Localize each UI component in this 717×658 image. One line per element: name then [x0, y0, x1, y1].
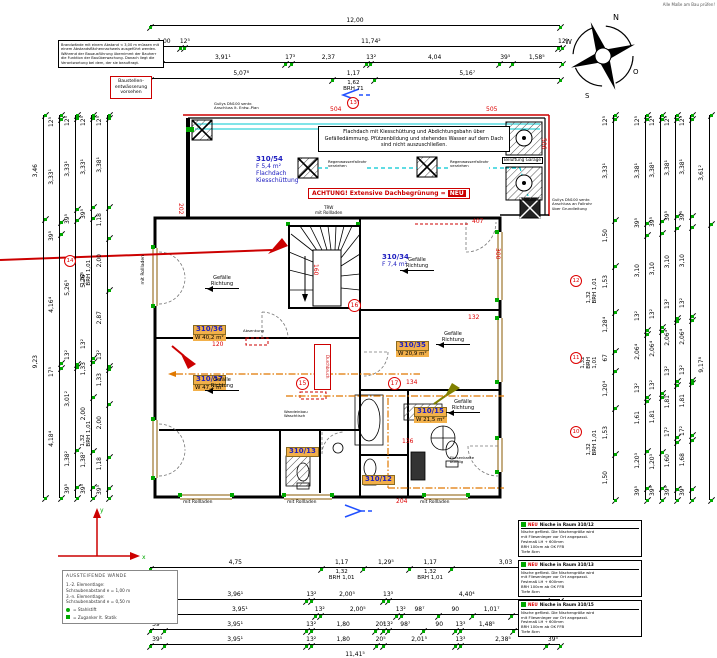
compass-s: S: [585, 92, 590, 100]
dim-segment: 9,23: [30, 226, 44, 499]
slope-direction: Gefälle Richtung: [446, 400, 480, 413]
slope-direction: Gefälle Richtung: [205, 276, 239, 289]
dim-value: 4,75: [150, 560, 321, 566]
legend-item: = Zuganker lt. Statik: [73, 615, 117, 621]
dim-segment: 3,38¹: [632, 128, 646, 214]
dim-value: 2,06⁴: [635, 344, 641, 360]
dim-value: 13²: [635, 383, 641, 393]
dim-value: 2,00⁵: [320, 607, 396, 613]
dim-value: 2,00: [97, 416, 103, 429]
dim-value: 39⁵: [635, 486, 641, 496]
dim-value: 1,17: [332, 71, 374, 77]
dim-segment: 1,18: [94, 447, 108, 481]
coordinate-axes: [58, 508, 140, 560]
dim-value: 20⁵: [375, 622, 382, 628]
dimension-chain: 39⁵3,95¹13²1,8020⁵13²98⁷9013³1,48⁵9039⁵: [150, 616, 560, 630]
dim-value: 90: [423, 622, 455, 628]
dim-value: 3,33¹: [49, 169, 55, 185]
slope-text: Gefälle Richtung: [211, 377, 233, 389]
dim-value: 1,33: [81, 362, 87, 375]
dim-value: 2,06⁴: [680, 329, 686, 345]
dim-segment: 2,37: [291, 49, 366, 63]
dim-value: 1,80: [311, 622, 376, 628]
drain-label-right: Gullys DN100 senkr. Anschluss an Fallroh…: [552, 198, 592, 211]
dim-value: 2,01⁵: [383, 637, 455, 643]
dim-segment: 1,33: [94, 362, 108, 399]
neu-tag: NEU: [528, 602, 538, 607]
room-number: 310/15: [414, 407, 447, 417]
dim-value: 3,38¹: [97, 157, 103, 173]
dim-value: 9,23: [33, 355, 39, 368]
dim-value: 67: [603, 354, 609, 362]
dim-segment: 13²: [662, 365, 676, 378]
dimension-chain: 12⁵3,33¹39⁵5,26⁵13²3,01²1,38²39⁵: [62, 115, 76, 498]
dim-segment: 3,10: [677, 225, 691, 297]
dim-segment: 13²: [62, 348, 76, 361]
niche-legend-header: NEUNische in Raum 310/13: [521, 562, 639, 569]
installation-arrowhead: [168, 371, 176, 377]
general-note: Brandwände mit einem Abstand < 3,00 m mü…: [58, 40, 164, 68]
dim-value: 1,38²: [65, 451, 71, 467]
garage-vent-label: Belüftung Garage: [502, 157, 543, 164]
window-label: mit Rollladen: [183, 501, 213, 506]
dim-value: 2,06⁴: [650, 341, 656, 357]
dim-value: 98⁷: [388, 622, 423, 628]
dim-value: 13²: [81, 339, 87, 349]
dim-value: 39⁵: [680, 211, 686, 221]
staircase: [289, 226, 360, 308]
dim-value: 12⁵: [635, 116, 641, 126]
dim-value: 1,33: [97, 373, 103, 386]
dimension-chain: 39⁵3,96¹13²2,00⁵13³4,40⁴39⁵: [150, 586, 560, 600]
dim-value: 12⁵: [603, 116, 609, 126]
dim-value: 12⁵: [650, 116, 656, 126]
dim-value: 1,81: [650, 410, 656, 423]
dim-segment: 5,07⁸: [150, 65, 332, 79]
dim-value: 3,01²: [65, 391, 71, 407]
niche-legend-header: NEUNische in Raum 310/15: [521, 602, 639, 609]
dim-segment: 1,33: [78, 350, 92, 388]
dim-segment: 3,10: [647, 231, 661, 308]
dim-segment: 17²: [662, 425, 676, 438]
slope-direction: Gefälle Richtung: [205, 378, 239, 391]
dimension-chain: 12,00: [150, 12, 560, 26]
dim-segment: 39⁵: [662, 208, 676, 226]
dim-value: 39⁵: [499, 55, 512, 61]
dim-value: 17²: [680, 426, 686, 436]
position-circle: 17: [388, 377, 401, 390]
dim-value: 1,20³: [635, 453, 641, 469]
dim-value: 39⁵: [49, 231, 55, 241]
dim-value: 13²: [650, 380, 656, 390]
dim-value: 13²: [65, 350, 71, 360]
dim-value: 12⁵: [665, 116, 671, 126]
dim-segment: 1,171,62 BRH 7113: [332, 65, 374, 79]
dim-value: 12⁵: [81, 116, 87, 126]
dim-segment: 3,33¹: [46, 128, 60, 226]
legend-niches: NEUNische in Raum 310/12Nische gefliest.…: [518, 520, 642, 640]
dimension-chain: 1,0012⁵11,74²12⁵: [148, 33, 562, 47]
dimension-chain: 39⁵3,91¹17³2,3713²4,0439⁵1,58⁵: [148, 49, 562, 63]
dim-value: 1,50: [603, 229, 609, 242]
dim-segment: 2,87: [94, 285, 108, 349]
dim-value: 1,53: [603, 426, 609, 439]
dim-segment: 3,10: [632, 232, 646, 310]
plan-annotation: Fliesenkante bündig: [450, 456, 474, 465]
dim-segment: 3,01²: [62, 361, 76, 437]
dim-segment: 39⁵: [647, 213, 661, 231]
window-label: mit Rollladen: [287, 501, 317, 506]
dim-value: 13²: [635, 311, 641, 321]
dimension-chain: 12⁵3,38¹39⁵3,1013²2,06⁴13²1,811,20³39⁵: [647, 115, 661, 500]
drainage-note: Baustellen- entwässerung vorsehen: [110, 76, 152, 99]
dim-value: 39⁵: [680, 486, 686, 496]
dim-value: 3,91¹: [161, 55, 286, 61]
dim-segment: 3,38¹: [94, 127, 108, 202]
slope-arrow-icon: [436, 344, 470, 345]
position-number: 505: [486, 107, 497, 113]
dim-segment: 671,32 BRH 1,0111: [600, 347, 614, 369]
dim-segment: 1,18: [94, 203, 108, 237]
dim-value: 1,68: [680, 453, 686, 466]
dim-segment: 1,28⁴: [600, 304, 614, 347]
dim-value: 39⁵: [81, 209, 87, 219]
position-number: 202: [177, 203, 183, 214]
position-number: 120: [212, 342, 223, 348]
room-number: 310/36: [193, 325, 226, 335]
position-number: 136: [402, 439, 413, 445]
dim-segment: 13²: [677, 297, 691, 310]
dim-value: 3,96¹: [164, 592, 306, 598]
dim-segment: 3,95¹: [165, 601, 315, 615]
slope-text: Gefälle Richtung: [452, 399, 474, 411]
dim-value: 3,10: [680, 254, 686, 267]
dim-value: 4,16⁴: [49, 297, 55, 313]
dim-segment: 1,171,32 BRH 1,01: [409, 554, 451, 568]
dim-value: 13²: [650, 309, 656, 319]
compass-o: O: [633, 68, 639, 76]
dim-value: 9,17⁸: [699, 357, 705, 373]
dimension-chain: 12⁵3,38¹39⁵3,1013²2,06⁴13²1,8117²1,6839⁵: [677, 115, 691, 500]
dim-value: 1,48⁵: [460, 622, 513, 628]
dim-segment: 2,01⁵: [383, 631, 455, 645]
dim-sub-value: 1,62 BRH 71: [312, 80, 394, 93]
dim-value: 2,00: [97, 254, 103, 267]
dim-sub-value: 1,32 BRH 1,01: [586, 410, 598, 456]
room-tag: 310/35W 20,9 m²: [396, 332, 429, 357]
dim-value: 3,33¹: [81, 159, 87, 175]
niche-line: Tiefe 8cm: [521, 550, 639, 555]
dim-segment: 39⁵: [632, 214, 646, 232]
dim-value: 1,01⁷: [472, 607, 511, 613]
niche-legend-box: NEUNische in Raum 310/13Nische gefliest.…: [518, 560, 642, 597]
dim-value: 39⁵: [65, 484, 71, 494]
dim-segment: 3,38¹: [662, 127, 676, 207]
dim-segment: 1,38²: [62, 437, 76, 480]
drain-label-left: Gullys DN100 senkr. Anschluss lt. Entw.-…: [214, 102, 259, 111]
dim-value: 1,17: [409, 560, 451, 566]
dimension-chain: 12⁵3,38¹39⁵3,1013²2,06⁴13²1,8117²1,6039⁵: [662, 115, 676, 500]
dim-segment: 9,17⁸: [696, 231, 710, 500]
dim-value: 1,38²: [81, 452, 87, 468]
dim-value: 2,06⁴: [665, 330, 671, 346]
dim-segment: 3,38¹: [677, 127, 691, 207]
dim-segment: 11,41⁵: [150, 646, 560, 658]
dim-value: 39⁵: [97, 485, 103, 495]
room-tag: 310/36W 40,2 m²: [193, 316, 226, 341]
room-id: 310/54: [256, 155, 283, 163]
dim-segment: 1,01⁷: [472, 601, 511, 615]
dim-value: 1,20⁴: [603, 381, 609, 397]
dim-segment: 2,001,32 BRH 1,0114: [94, 237, 108, 286]
neu-tag: NEU: [528, 522, 538, 527]
dim-value: 39⁵: [650, 486, 656, 496]
room-number: 310/13: [286, 447, 319, 457]
legend-line: Schraubenabstand e = 0,50 m: [66, 599, 174, 605]
slope-arrow-icon: [446, 412, 480, 413]
dim-sub-value: 1,32 BRH 1,01: [301, 569, 383, 582]
dim-segment: 98⁷: [388, 616, 423, 630]
axis-x-label: x: [142, 554, 146, 561]
slope-direction: Gefälle Richtung: [400, 258, 434, 271]
dim-value: 39⁵: [635, 218, 641, 228]
dim-segment: 13²: [677, 364, 691, 377]
dim-segment: 13²: [647, 308, 661, 321]
dim-segment: 1,531,32 BRH 1,0112: [600, 258, 614, 304]
dim-segment: 3,10: [662, 225, 676, 297]
neu-tag: NEU: [528, 562, 538, 567]
durchbruch-note: Durchbruch: [314, 344, 331, 390]
drain-label-mid2: Regenwasserfallrohr verziehen: [450, 160, 489, 169]
dimension-chain: 12⁵3,33¹39⁵4,16⁴17⁵4,18⁴: [46, 115, 60, 498]
dim-segment: 11,74²: [184, 33, 558, 47]
dim-value: 3,33¹: [65, 161, 71, 177]
dim-value: 3,33¹: [603, 163, 609, 179]
dim-value: 1,61: [635, 411, 641, 424]
dim-value: 13²: [665, 299, 671, 309]
slope-arrow-icon: [205, 390, 239, 391]
slope-arrow-icon: [205, 288, 239, 289]
slope-text: Gefälle Richtung: [211, 275, 233, 287]
dimension-chain: 11,41⁵: [150, 646, 560, 658]
dimension-chain: 3,469,23: [30, 115, 44, 498]
slope-text: Gefälle Richtung: [442, 331, 464, 343]
niche-title: Nische in Raum 310/12: [540, 522, 594, 527]
dim-value: 1,50: [603, 471, 609, 484]
dim-segment: 3,95¹: [164, 631, 306, 645]
dim-segment: 1,50: [600, 214, 614, 259]
dim-value: 90: [438, 607, 472, 613]
room-tag: 310/12: [362, 466, 395, 485]
roof-note: Flachdach mit Kiesschüttung und Abdichtu…: [318, 126, 510, 152]
dim-segment: 1,48⁵: [460, 616, 513, 630]
room-label-310-54: 310/54 F 5,4 m² Flachdach Kiesschüttung: [256, 148, 299, 191]
niche-marker-icon: [521, 562, 526, 567]
dim-segment: 3,46: [30, 115, 44, 226]
position-number: 132: [468, 315, 479, 321]
dim-sub-value: 1,32 BRH 1,01: [580, 347, 598, 369]
dim-value: 17²: [665, 427, 671, 437]
dim-segment: 5,16⁷: [374, 65, 560, 79]
drain-label-mid1: Regenwasserfallrohr verziehen: [328, 160, 367, 169]
legend-title: AUSSTEIFENDE WÄNDE: [66, 574, 174, 580]
dim-segment: 13²: [632, 310, 646, 323]
position-circle: 15: [296, 377, 309, 390]
dim-segment: 4,16⁴: [46, 246, 60, 365]
dim-value: 1,60: [665, 454, 671, 467]
dimension-chain: 39⁵3,95¹13²2,00⁵13²98⁷901,01⁷9039⁵: [150, 601, 560, 615]
dim-segment: 1,29⁵: [363, 554, 410, 568]
dimension-chain: 5,07⁸1,171,62 BRH 71135,16⁷: [150, 65, 560, 79]
dim-value: 3,46: [33, 164, 39, 177]
dim-value: 11,74²: [184, 39, 558, 45]
dim-segment: 13²: [632, 381, 646, 394]
dim-value: 39⁵: [150, 637, 164, 643]
legend-walls: AUSSTEIFENDE WÄNDE 1.-2. Elementlage: Sc…: [62, 570, 178, 624]
dim-segment: 3,95¹: [164, 616, 306, 630]
dim-value: 2,00⁵: [311, 592, 383, 598]
dim-value: 12,00: [150, 18, 560, 24]
dim-segment: 3,33¹: [62, 128, 76, 210]
floor-plan-sheet: Alle Maße am Bau prüfen! Brandwände mit …: [0, 0, 717, 658]
niche-legend-header: NEUNische in Raum 310/12: [521, 522, 639, 529]
dim-value: 3,95¹: [165, 607, 315, 613]
dim-segment: 1,20³: [632, 441, 646, 482]
dim-value: 1,17: [321, 560, 363, 566]
position-number: 407: [472, 219, 483, 225]
dim-segment: 98⁷: [401, 601, 438, 615]
dim-value: 12⁵: [49, 117, 55, 127]
dimension-chain: 3,61²9,17⁸: [696, 115, 710, 500]
position-circle: 14: [64, 255, 76, 267]
dim-segment: 4,75: [150, 554, 321, 568]
position-number: 300: [494, 248, 500, 259]
position-circle: 16: [348, 299, 361, 312]
dim-value: 13²: [97, 350, 103, 360]
dim-segment: 2,06⁴: [662, 310, 676, 365]
room-tag: 310/13: [286, 438, 319, 457]
dim-value: 1,58⁵: [512, 55, 562, 61]
legend-item: = Stahlstift: [73, 607, 97, 613]
dim-segment: 90: [423, 616, 455, 630]
trw-label: TRW mit Rollladen: [315, 206, 342, 216]
dim-value: 1,29⁵: [363, 560, 410, 566]
plan-annotation: Wandeinbau Waschtisch: [284, 410, 308, 419]
dim-segment: 13²: [94, 349, 108, 361]
window-label: mit Rollladen: [420, 501, 450, 506]
dimension-chain: 12⁵3,38¹39⁵3,1013²2,06⁴13²1,611,20³39⁵: [632, 115, 646, 500]
dim-value: 1,20³: [650, 454, 656, 470]
dim-value: 5,16⁷: [374, 71, 560, 77]
dim-value: 3,38¹: [665, 160, 671, 176]
sheet-corner-note: Alle Maße am Bau prüfen!: [663, 2, 715, 7]
room-area: W 20,9 m²: [396, 351, 429, 357]
dim-value: 13²: [665, 366, 671, 376]
dim-segment: 90: [438, 601, 472, 615]
dim-segment: 3,33¹: [78, 127, 92, 205]
room-number: 310/35: [396, 341, 429, 351]
dim-segment: 1,171,32 BRH 1,01: [321, 554, 363, 568]
roof-warning: ACHTUNG! Extensive Dachbegrünung = NEU: [308, 188, 470, 199]
compass-n: N: [613, 13, 619, 22]
niche-line: Tiefe 8cm: [521, 590, 639, 595]
dim-sub-value: 1,32 BRH 1,01: [80, 398, 92, 447]
dim-value: 39⁵: [650, 217, 656, 227]
niche-marker-icon: [521, 602, 526, 607]
dim-segment: 3,38¹: [647, 128, 661, 213]
dim-value: 1,53: [603, 275, 609, 288]
dim-segment: 1,20³: [647, 441, 661, 481]
dim-value: 3,10: [650, 262, 656, 275]
dim-segment: 39⁵: [677, 207, 691, 225]
niche-title: Nische in Raum 310/15: [540, 602, 594, 607]
dim-value: 1,81: [665, 395, 671, 408]
dim-value: 3,38¹: [650, 162, 656, 178]
dim-segment: 3,96¹: [164, 586, 306, 600]
dim-segment: 12,00: [150, 12, 560, 26]
dim-value: 39⁵: [665, 486, 671, 496]
niche-marker-icon: [521, 522, 526, 527]
dim-value: 13²: [680, 298, 686, 308]
dimension-chain: 4,751,171,32 BRH 1,011,29⁵1,171,32 BRH 1…: [150, 554, 560, 568]
dim-segment: 1,80: [311, 616, 376, 630]
dim-segment: 4,04: [370, 49, 499, 63]
position-circle: 11: [570, 352, 582, 364]
dim-segment: 13²: [662, 297, 676, 310]
dimension-chain: 12⁵3,33¹1,501,531,32 BRH 1,01121,28⁴671,…: [600, 115, 614, 500]
position-number: 204: [396, 499, 407, 505]
dim-value: 4,18⁴: [49, 431, 55, 447]
dim-segment: 4,18⁴: [46, 379, 60, 498]
dim-value: 39⁵: [81, 484, 87, 494]
dim-segment: 1,58⁵: [512, 49, 562, 63]
dim-segment: 13²: [647, 378, 661, 391]
dim-value: 1,18: [97, 457, 103, 470]
dim-value: 5,26⁵: [65, 280, 71, 296]
dim-value: 2,87: [97, 311, 103, 324]
dim-value: 3,95¹: [164, 622, 306, 628]
dim-value: 4,04: [370, 55, 499, 61]
roof-warning-tag: NEU: [448, 190, 466, 197]
dim-value: 3,10: [635, 264, 641, 277]
dim-sub-value: 1,32 BRH 1,01: [586, 258, 598, 304]
niche-title: Nische in Raum 310/13: [540, 562, 594, 567]
dim-segment: 1,531,32 BRH 1,0110: [600, 410, 614, 456]
steel-pin-icon: [66, 608, 70, 612]
position-number: 134: [406, 380, 417, 386]
dim-segment: 3,91¹: [161, 49, 286, 63]
dim-segment: 17²: [677, 424, 691, 437]
dim-value: 39⁵: [665, 211, 671, 221]
dim-value: 98⁷: [401, 607, 438, 613]
dim-segment: 2,00⁵: [320, 601, 396, 615]
dim-sub-value: 1,32 BRH 1,01: [80, 237, 92, 286]
dim-value: 12⁵: [680, 116, 686, 126]
dim-sub-value: 1,32 BRH 1,01: [389, 569, 471, 582]
plan-annotation: Absenkung: [243, 329, 264, 333]
compass-rose: N W O S: [559, 11, 648, 102]
dim-segment: 5,26⁵: [62, 228, 76, 349]
dimension-chain: 39⁵3,95¹13²1,8020⁵2,01⁵13³2,38⁵39⁵: [150, 631, 560, 645]
slope-direction: Gefälle Richtung: [436, 332, 470, 345]
dim-segment: 13²: [78, 337, 92, 350]
dimension-chain: 12⁵3,38¹1,182,001,32 BRH 1,01142,8713²1,…: [94, 115, 108, 498]
roof-warning-text: ACHTUNG! Extensive Dachbegrünung =: [312, 190, 446, 197]
dim-segment: 1,50: [600, 455, 614, 500]
dim-value: 3,95¹: [164, 637, 306, 643]
dim-value: 1,81: [680, 394, 686, 407]
niche-legend-box: NEUNische in Raum 310/12Nische gefliest.…: [518, 520, 642, 557]
